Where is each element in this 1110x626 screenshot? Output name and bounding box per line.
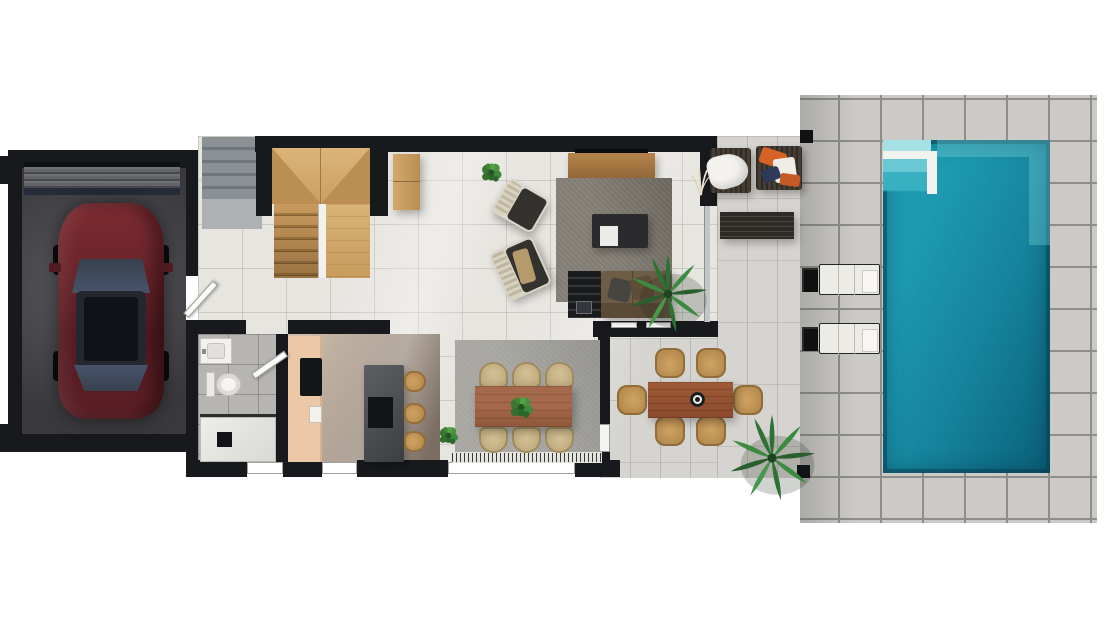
dining-chair [479,427,508,453]
car-windshield [72,259,150,293]
dining-chair [512,427,541,453]
terrace-coffee-table [720,212,794,239]
bottom-window [322,462,357,474]
orange-pillow [779,173,800,188]
pad-seam [838,324,839,355]
tv-console [568,153,655,178]
bottom-wall-seg [283,460,322,477]
cooktop [300,358,322,396]
media-screen [576,301,592,314]
pergola-post-top [800,130,813,143]
hall-wall-a [186,320,246,334]
white-throw [704,150,751,193]
toilet [206,372,242,397]
bottom-wall-seg [186,460,247,477]
kitchen-sink [309,406,322,423]
car-rear-window [74,365,148,391]
dining-chair [479,362,508,388]
walk-in-shower [200,417,276,462]
palm-plant-terrace [726,412,818,504]
bar-stool [404,371,426,392]
bar-stool [404,431,426,452]
floor-plan-rendering [0,0,1110,626]
stair-left-flight [274,204,318,278]
garage-wall-nub-top [0,156,10,184]
sink-basin [207,343,225,359]
pool-step-divider-wall-h [883,151,931,159]
pool-shelf-right [1029,157,1050,245]
kitchen-cabinets [288,336,322,462]
garage-wall-nub-bottom [0,424,10,452]
outdoor-chair [617,385,647,415]
sofa-media-shelf [568,271,601,318]
outdoor-chair [696,348,726,378]
outdoor-chair [655,348,685,378]
sun-lounger-1 [802,263,880,297]
palm-plant-living [626,252,710,336]
car-mirror-right [161,263,173,272]
outdoor-sofa-right [756,146,802,190]
vanity-sink [200,338,232,364]
car-sunroof [84,297,138,361]
dining-chair [545,427,574,453]
hall-wall-b [288,320,390,334]
lounger-pillow [862,329,878,352]
outdoor-chair [655,416,685,446]
table-centerpiece-plant [504,390,540,426]
parked-car [56,203,166,419]
sun-lounger-2 [802,322,880,356]
island-cooktop [368,397,393,428]
shower-drain [217,432,232,447]
hall-console [393,154,420,210]
car-mirror-left [49,263,61,272]
garage-door-shadow [24,188,180,195]
bar-stool [404,403,426,424]
faucet [202,349,206,354]
stairwell-wall-right [368,150,388,216]
lounger-side-table [802,327,818,351]
pad-seam [854,265,855,296]
stair-right-flight [326,204,370,278]
lounger-pad [819,264,880,295]
entry-steps [202,137,262,199]
dining-rug-fringe [452,453,602,462]
pad-seam [854,324,855,355]
pool-step-divider-wall-v [927,151,937,194]
toilet-tank [206,372,215,397]
console-seam [393,181,420,182]
entry-landing [202,199,262,229]
lounger-pillow [862,270,878,293]
stair-landing-seam [320,148,321,204]
stairwell-wall-left [256,150,272,216]
stair-glass-divider [318,204,326,278]
lounger-side-table [802,268,818,292]
coffee-table-tray [600,226,618,246]
dining-chair [545,362,574,388]
floor-plant [434,420,464,452]
potted-bush [476,156,508,190]
bottom-window [247,462,283,474]
toilet-bowl [216,373,241,396]
bottom-glass-slider [448,462,575,474]
dining-chair [512,362,541,388]
garage-door [24,162,180,188]
outdoor-chair [733,385,763,415]
staircase [272,148,370,278]
lounger-pad [819,323,880,354]
outdoor-sofa-left [710,148,751,193]
outdoor-chair [696,416,726,446]
centerpiece-bowl [690,392,705,407]
bottom-wall-seg [357,460,448,477]
pool-shelf-top [937,140,1050,157]
pad-seam [838,265,839,296]
